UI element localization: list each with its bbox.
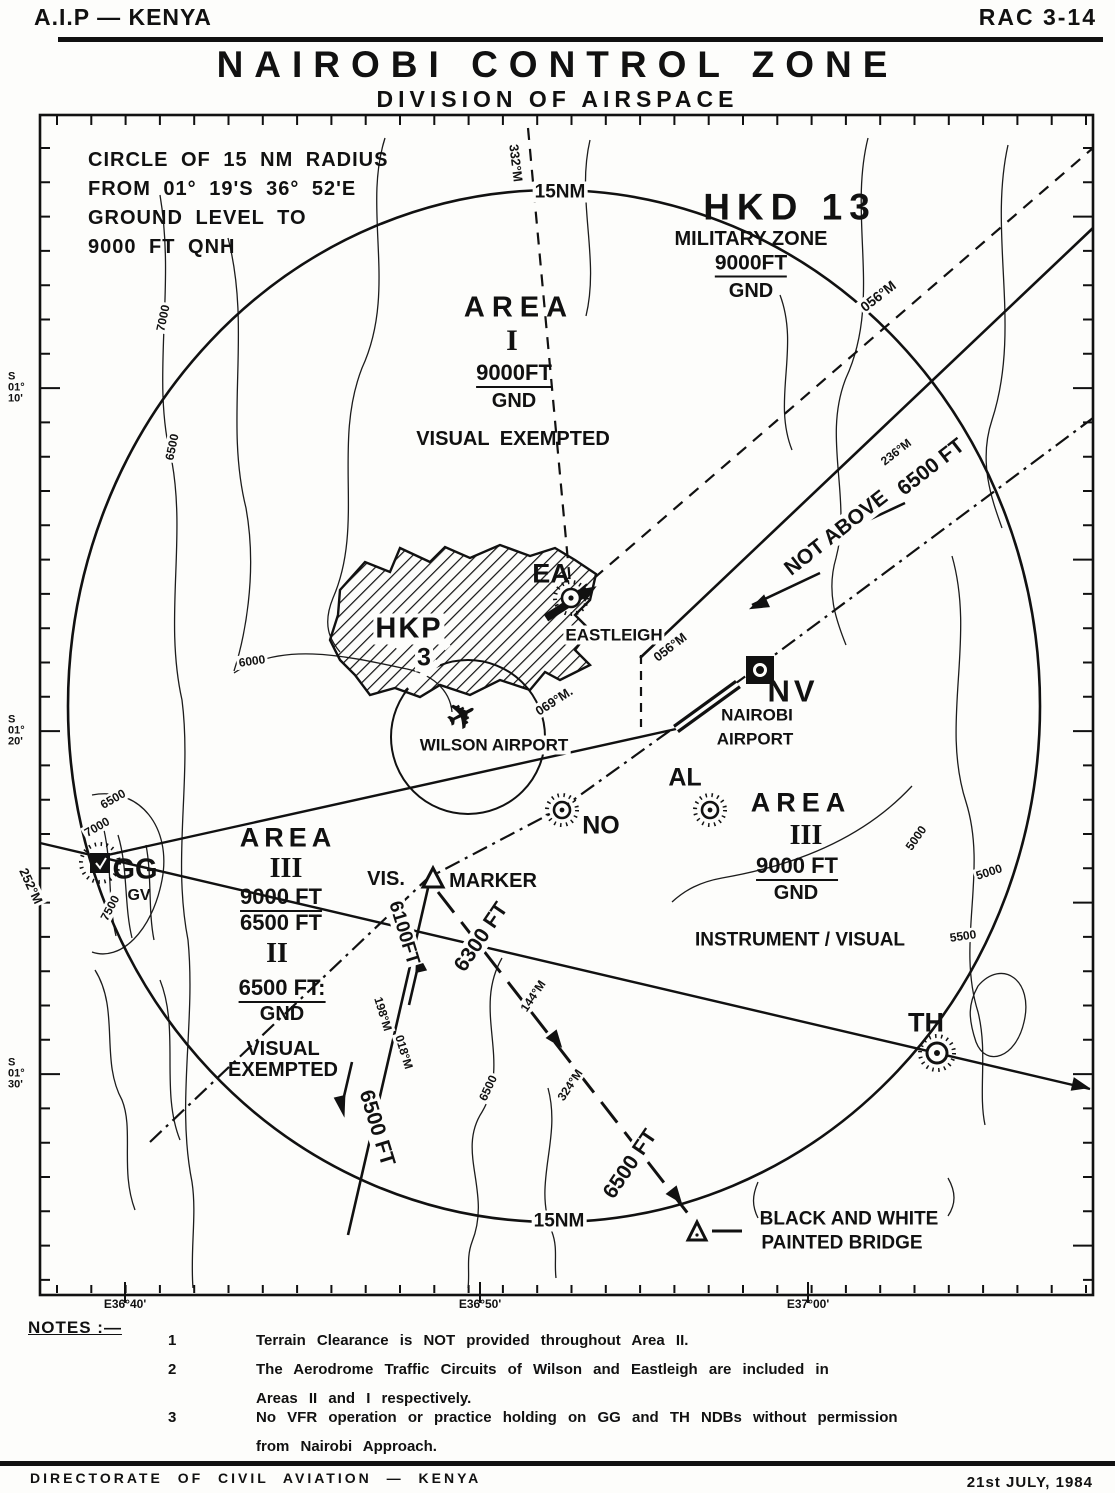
zone-info-box: CIRCLE OF 15 NM RADIUS FROM 01° 19'S 36°… [88,146,388,262]
route-lines [40,128,1093,1235]
graticule-ticks [41,116,1092,1303]
zone-info-line: FROM 01° 19'S 36° 52'E [88,175,388,204]
zone-info-line: GROUND LEVEL TO [88,204,388,233]
aip-chart-page: A.I.P — KENYA RAC 3-14 NAIROBI CONTROL Z… [0,0,1115,1493]
bridge-marker-triangle [688,1222,706,1240]
ndb-th-symbol [920,1036,954,1070]
map-frame [40,115,1093,1295]
ndb-no-symbol [547,795,577,825]
zone-info-line: CIRCLE OF 15 NM RADIUS [88,146,388,175]
bridge-marker-dot [695,1233,698,1236]
nairobi-city-hatched-area [330,545,596,697]
ndb-al-symbol [695,795,725,825]
zone-info-line: 9000 FT QNH [88,233,388,262]
ndb-nv-symbol [746,656,774,684]
control-zone-circle [68,190,1040,1222]
terrain-contours [92,138,1026,1288]
nairobi-airport-runway [676,684,738,729]
visual-marker-triangle [423,868,443,887]
